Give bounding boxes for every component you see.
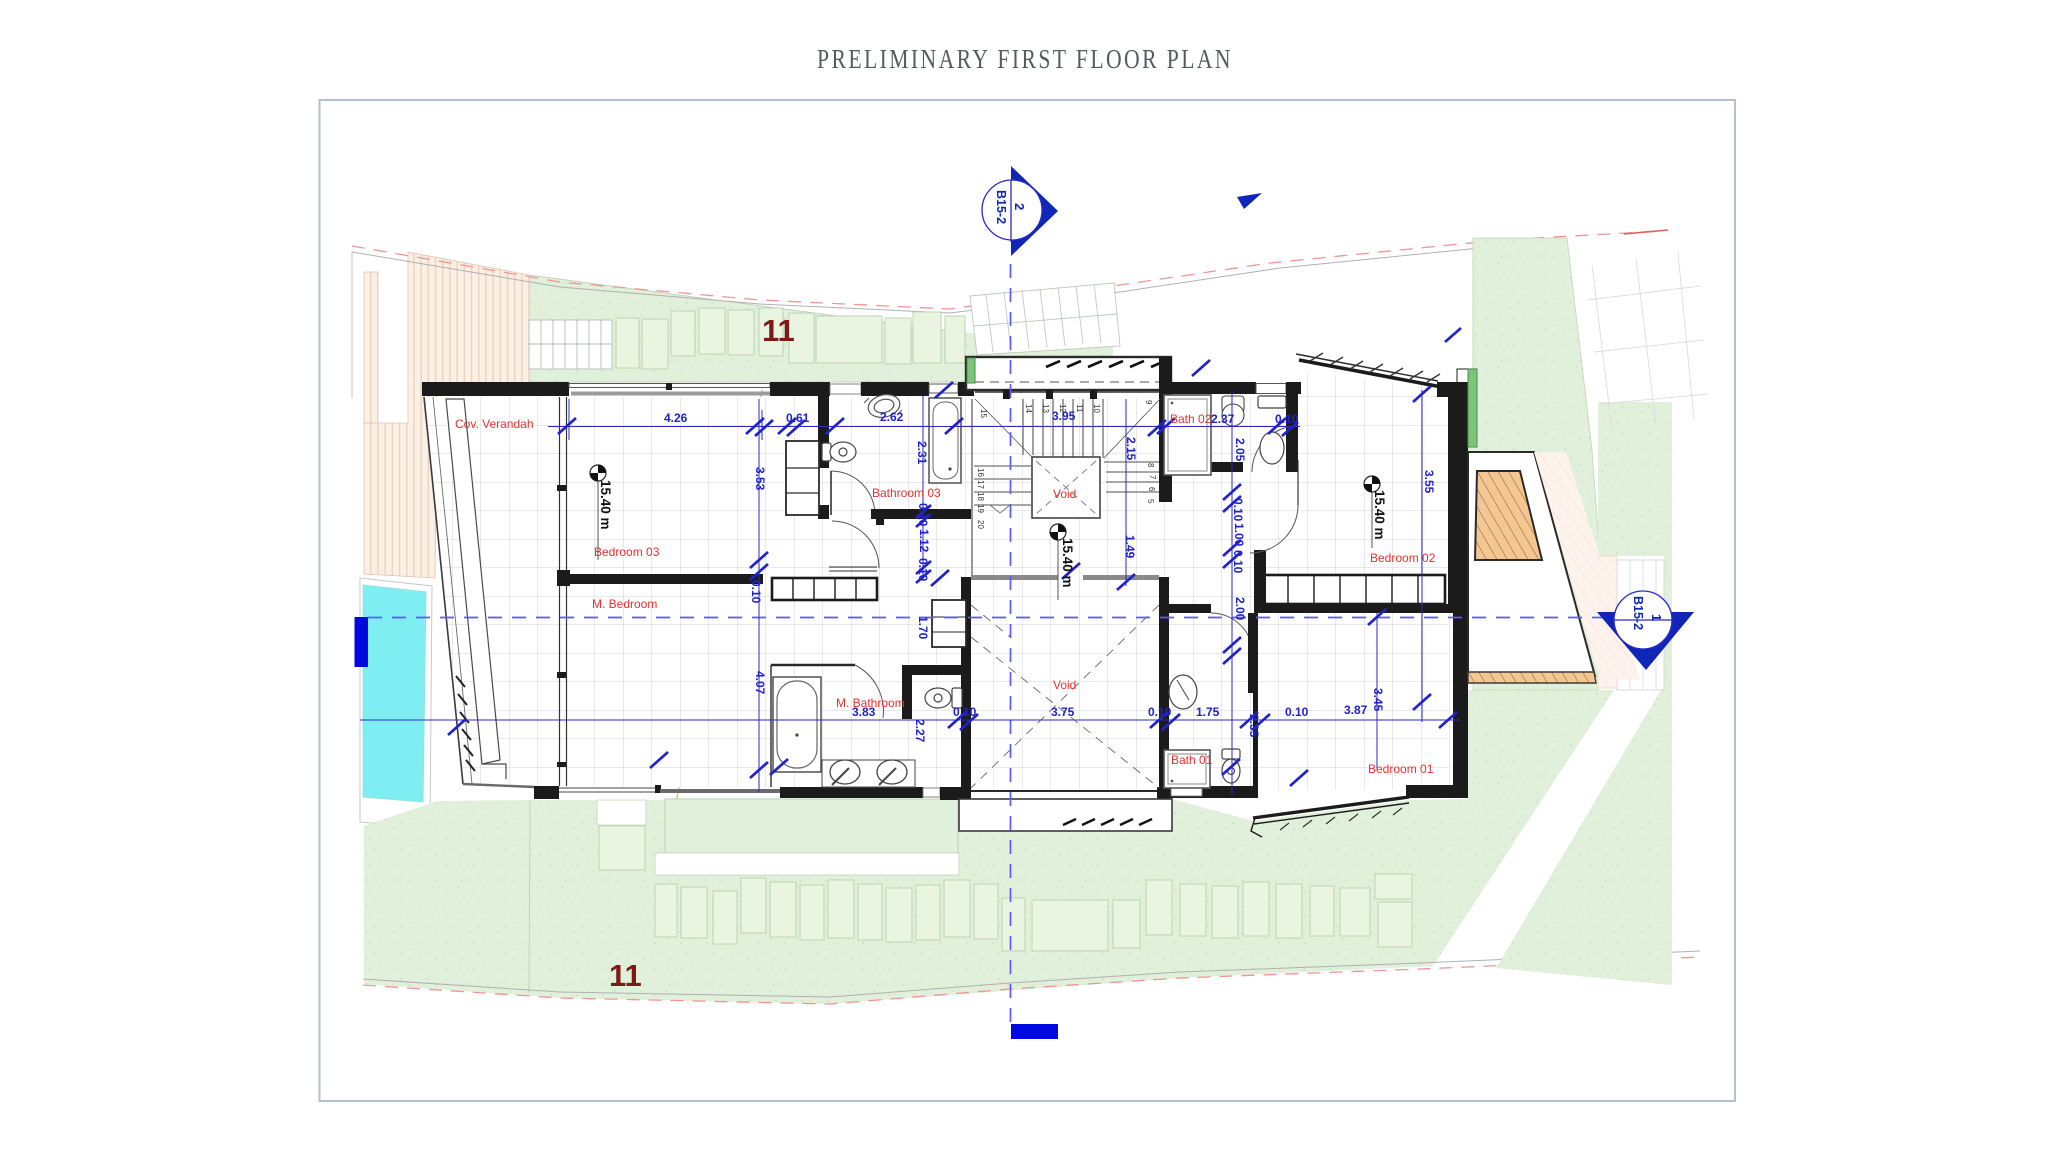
svg-text:M. Bathroom: M. Bathroom bbox=[836, 696, 905, 710]
svg-text:2: 2 bbox=[1012, 203, 1027, 210]
svg-text:10: 10 bbox=[1092, 404, 1101, 413]
svg-text:0.10: 0.10 bbox=[1285, 705, 1309, 719]
svg-text:PRELIMINARY FIRST FLOOR PLAN: PRELIMINARY FIRST FLOOR PLAN bbox=[817, 44, 1233, 74]
svg-text:2.35: 2.35 bbox=[1247, 714, 1261, 738]
svg-text:2.62: 2.62 bbox=[880, 410, 904, 424]
svg-text:B15-2: B15-2 bbox=[994, 190, 1008, 224]
svg-text:3.75: 3.75 bbox=[1051, 705, 1075, 719]
svg-text:19: 19 bbox=[976, 504, 985, 513]
svg-text:Bath 02: Bath 02 bbox=[1170, 412, 1212, 426]
svg-text:Bath 01: Bath 01 bbox=[1171, 753, 1213, 767]
svg-text:15: 15 bbox=[979, 409, 988, 418]
svg-text:15.40 m: 15.40 m bbox=[1372, 490, 1387, 540]
svg-text:3.87: 3.87 bbox=[1344, 703, 1368, 717]
svg-text:15.40 m: 15.40 m bbox=[598, 480, 613, 530]
svg-text:1.49: 1.49 bbox=[1123, 535, 1137, 559]
svg-text:3.53: 3.53 bbox=[753, 467, 767, 491]
svg-text:0.10: 0.10 bbox=[749, 580, 763, 604]
svg-text:16: 16 bbox=[976, 468, 985, 477]
svg-text:11: 11 bbox=[609, 958, 642, 993]
svg-text:2.05: 2.05 bbox=[1233, 438, 1247, 462]
svg-text:2.15: 2.15 bbox=[1124, 437, 1138, 461]
svg-text:7: 7 bbox=[1148, 475, 1157, 480]
svg-text:17: 17 bbox=[976, 480, 985, 489]
svg-text:11: 11 bbox=[1075, 404, 1084, 413]
svg-text:6: 6 bbox=[1147, 487, 1156, 492]
svg-text:11: 11 bbox=[762, 313, 795, 348]
svg-text:18: 18 bbox=[976, 492, 985, 501]
svg-text:3.95: 3.95 bbox=[1052, 409, 1076, 423]
svg-text:1.12: 1.12 bbox=[917, 529, 931, 553]
svg-text:1.70: 1.70 bbox=[916, 616, 930, 640]
svg-text:Void: Void bbox=[1053, 487, 1076, 501]
svg-text:3.55: 3.55 bbox=[1422, 470, 1436, 494]
svg-text:2.31: 2.31 bbox=[915, 441, 929, 465]
svg-text:Bathroom 03: Bathroom 03 bbox=[872, 486, 941, 500]
svg-text:2.00: 2.00 bbox=[1233, 597, 1247, 621]
svg-text:13: 13 bbox=[1041, 404, 1050, 413]
svg-text:4.26: 4.26 bbox=[664, 411, 688, 425]
svg-text:3.45: 3.45 bbox=[1371, 688, 1385, 712]
svg-text:Bedroom 02: Bedroom 02 bbox=[1370, 551, 1436, 565]
svg-text:0.10: 0.10 bbox=[953, 705, 977, 719]
svg-text:9: 9 bbox=[1144, 400, 1153, 405]
svg-text:0.10: 0.10 bbox=[1275, 412, 1299, 426]
svg-text:B15-2: B15-2 bbox=[1631, 596, 1645, 630]
svg-text:15.40 m: 15.40 m bbox=[1060, 538, 1075, 588]
svg-text:Bedroom 01: Bedroom 01 bbox=[1368, 762, 1434, 776]
svg-text:20: 20 bbox=[976, 520, 985, 529]
svg-text:M. Bedroom: M. Bedroom bbox=[592, 597, 657, 611]
svg-text:2.27: 2.27 bbox=[913, 719, 927, 743]
svg-text:Void: Void bbox=[1053, 678, 1076, 692]
svg-text:4.07: 4.07 bbox=[753, 671, 767, 695]
svg-text:5: 5 bbox=[1146, 499, 1155, 504]
svg-text:0.10: 0.10 bbox=[1148, 705, 1172, 719]
svg-text:2.37: 2.37 bbox=[1211, 412, 1235, 426]
svg-text:8: 8 bbox=[1146, 463, 1155, 468]
svg-text:14: 14 bbox=[1024, 404, 1033, 413]
svg-text:Bedroom 03: Bedroom 03 bbox=[594, 545, 660, 559]
svg-text:1: 1 bbox=[1649, 614, 1664, 621]
svg-text:1.75: 1.75 bbox=[1196, 705, 1220, 719]
svg-text:0.61: 0.61 bbox=[786, 411, 810, 425]
svg-text:Cov. Verandah: Cov. Verandah bbox=[455, 417, 534, 431]
